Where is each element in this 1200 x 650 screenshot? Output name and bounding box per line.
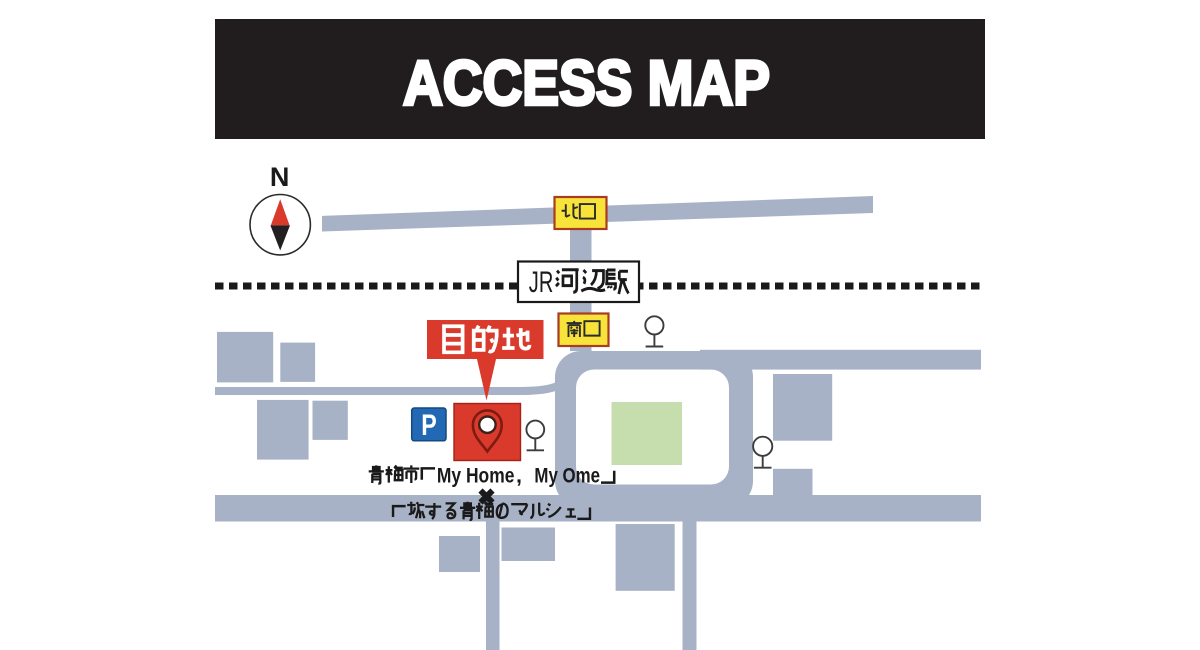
svg-text:My Home: My Home — [437, 464, 515, 488]
svg-text:JR: JR — [529, 266, 554, 299]
svg-text:P: P — [421, 409, 437, 442]
svg-text:N: N — [270, 162, 290, 192]
svg-text:My Ome: My Ome — [534, 464, 600, 488]
svg-text:,: , — [516, 464, 522, 488]
svg-text:ACCESS MAP: ACCESS MAP — [403, 49, 770, 119]
